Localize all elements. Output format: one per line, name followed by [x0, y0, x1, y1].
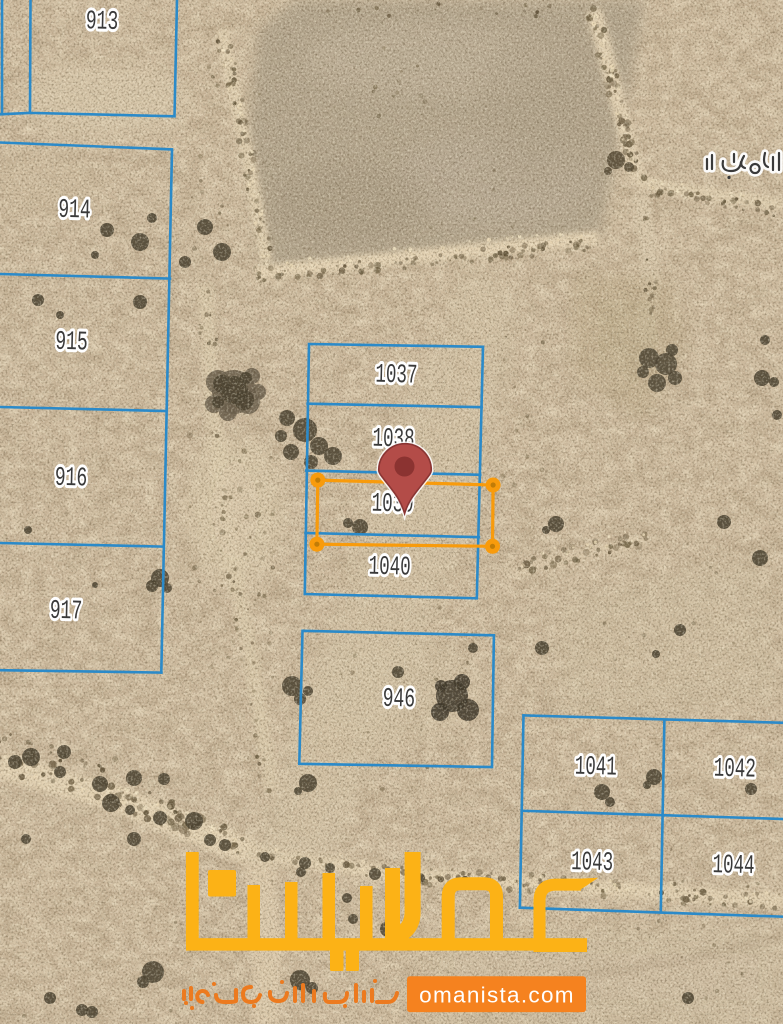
svg-text:1043: 1043 [571, 848, 614, 879]
svg-text:915: 915 [55, 328, 88, 359]
svg-text:916: 916 [54, 464, 87, 495]
svg-text:1042: 1042 [713, 755, 756, 786]
svg-text:1040: 1040 [368, 553, 411, 584]
svg-text:913: 913 [85, 7, 118, 38]
svg-text:1041: 1041 [574, 753, 617, 784]
svg-text:917: 917 [49, 597, 82, 628]
svg-text:omanista.com: omanista.com [419, 983, 575, 1008]
svg-text:1044: 1044 [712, 851, 755, 882]
svg-text:1037: 1037 [375, 361, 418, 392]
svg-text:946: 946 [382, 685, 415, 716]
svg-text:914: 914 [58, 196, 91, 227]
